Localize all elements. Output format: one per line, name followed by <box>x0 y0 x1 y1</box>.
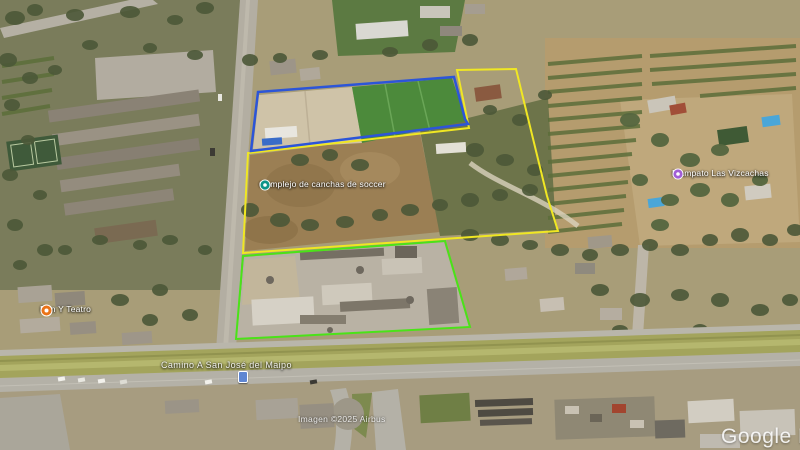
restaurant-icon[interactable] <box>40 304 53 317</box>
park-icon[interactable] <box>672 168 684 180</box>
poi-mampato[interactable]: Mampato Las Vizcachas <box>672 168 769 178</box>
poi-label-mampato[interactable]: Mampato Las Vizcachas <box>672 168 769 178</box>
poi-pan-y-teatro[interactable]: Pan Y Teatro <box>40 304 91 314</box>
demolition-site <box>237 242 469 338</box>
poi-label-soccer-complex[interactable]: Complejo de canchas de soccer <box>259 179 386 189</box>
route-shield-icon <box>238 371 248 383</box>
road-name-label: Camino A San José del Maipo <box>161 360 292 370</box>
google-earth-map-view[interactable]: Complejo de canchas de soccer Mampato La… <box>0 0 800 450</box>
satellite-imagery[interactable] <box>0 0 800 450</box>
poi-soccer-complex[interactable]: Complejo de canchas de soccer <box>259 179 386 189</box>
imagery-attribution: Imagen ©2025 Airbus <box>298 414 386 424</box>
sports-icon[interactable] <box>259 179 271 191</box>
google-earth-watermark: Google Earth <box>721 425 800 449</box>
